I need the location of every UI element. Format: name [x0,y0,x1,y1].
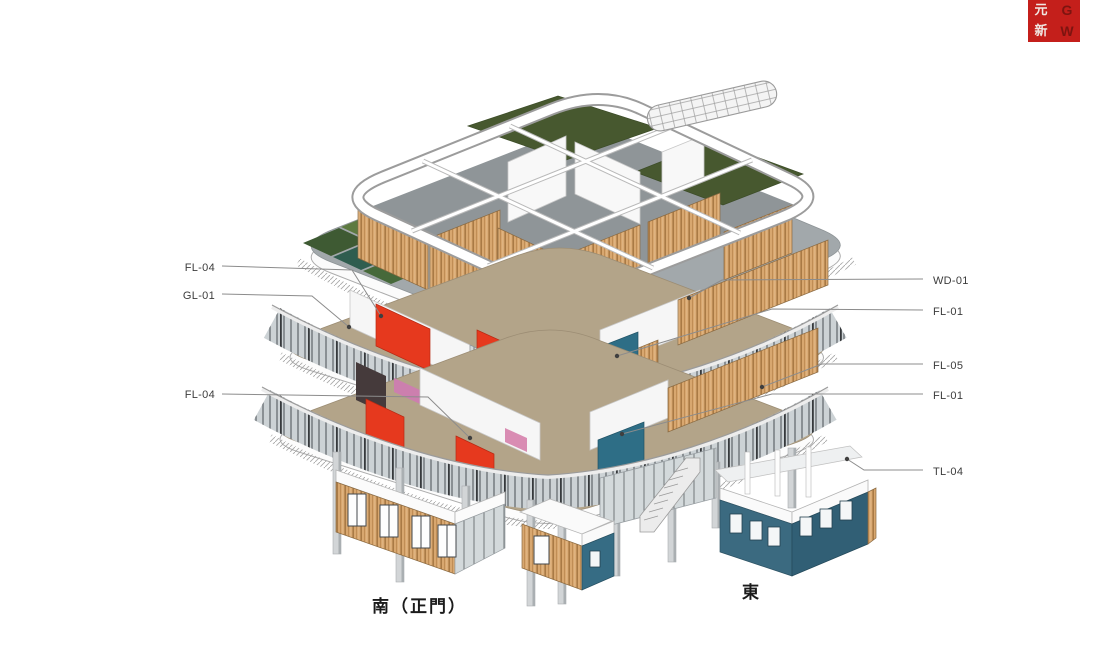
logo-char-yuan: 元 [1034,4,1047,17]
studio-logo: 元 G 新 W [1028,0,1080,42]
logo-char-w: W [1060,25,1073,38]
roof-canopy-grid [645,78,779,133]
logo-char-xin: 新 [1034,25,1047,38]
callout-fl01-upper: FL-01 [933,305,1013,319]
center-volume-window [534,536,549,564]
ground-right-teal-volume [715,446,876,576]
logo-char-g: G [1062,4,1073,17]
direction-south-main-gate: 南（正門） [372,592,467,617]
exploded-axonometric-diagram: FL-04 GL-01 FL-04 WD-01 FL-01 FL-05 FL-0… [0,0,1108,671]
building-axonometric-drawing [0,0,1108,671]
callout-gl01: GL-01 [130,289,215,303]
callout-tl04: TL-04 [933,465,1013,479]
center-volume-teal-window [590,551,600,567]
leader-tl04 [847,459,923,470]
direction-east: 東 [742,578,761,603]
callout-fl04-upper: FL-04 [130,261,215,275]
callout-fl05: FL-05 [933,359,1013,373]
callout-fl01-lower: FL-01 [933,389,1013,403]
callout-wd01: WD-01 [933,274,1013,288]
callout-fl04-lower: FL-04 [130,388,215,402]
